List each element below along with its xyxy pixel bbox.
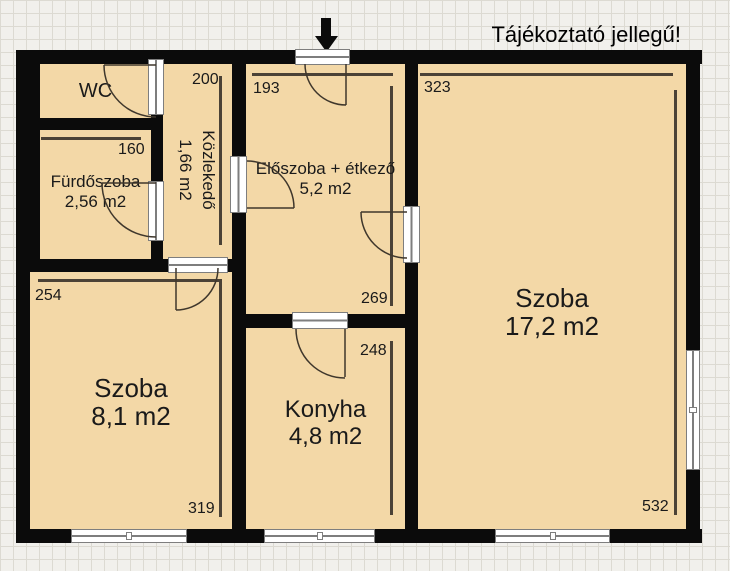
wall-outer-right [686,470,700,543]
door-opening-eloszoba-szoba-nagy [403,206,420,263]
dimension-line-szoba-nagy-width [420,73,673,76]
wall-outer-left [16,50,30,543]
wall-outer-right [686,50,700,350]
room-label-wc: WC [40,81,151,101]
wall-eloszoba-szoba-nagy [405,64,418,206]
wall-outer-bottom [375,529,495,543]
room-area: 5,2 m2 [246,179,405,199]
door-opening-entrance [295,49,350,65]
floorplan-canvas: Tájékoztató jellegű! 193 269 323 532 200… [0,0,730,571]
dimension-label-kozlekedo-height: 200 [192,71,219,88]
plan-disclaimer-title: Tájékoztató jellegű! [380,22,681,48]
room-name: Szoba [30,374,232,402]
door-opening-kozlekedo-eloszoba [230,156,247,213]
wall-eloszoba-konyha [348,314,405,328]
room-name: Szoba [418,284,686,312]
wall-wc-furdoszoba [40,118,151,130]
door-opening-eloszoba-konyha [292,312,348,329]
dimension-label-szoba-kis-width: 254 [35,287,62,304]
room-label-szoba-nagy: Szoba 17,2 m2 [418,284,686,340]
room-label-furdoszoba: Fürdőszoba 2,56 m2 [40,172,151,212]
dimension-line-furdoszoba-width [41,137,141,140]
wall-wc-kozlekedo [151,115,163,181]
wall-szoba-kis-konyha [232,272,246,543]
door-opening-wc [148,59,164,115]
room-label-eloszoba: Előszoba + étkező 5,2 m2 [246,159,405,199]
dimension-label-szoba-kis-height: 319 [188,500,215,517]
dimension-label-szoba-nagy-width: 323 [424,79,451,96]
wall-outer-bottom [16,529,71,543]
room-name: WC [40,81,151,101]
room-area: 1,66 m2 [174,115,197,225]
room-label-kozlekedo: Közlekedő 1,66 m2 [174,115,220,225]
wall-outer-bottom [187,529,264,543]
room-name: Konyha [246,396,405,423]
dimension-line-szoba-kis-width [38,279,222,282]
room-area: 4,8 m2 [246,423,405,450]
room-area: 8,1 m2 [30,402,232,430]
door-opening-kozlekedo-szoba-kis [168,257,228,273]
dimension-label-eloszoba-height: 269 [361,290,388,307]
dimension-label-eloszoba-width: 193 [253,80,280,97]
wall-furdoszoba-szoba-kis [16,259,168,272]
window-szoba-kis [71,529,187,543]
dimension-label-szoba-nagy-height: 532 [642,498,669,515]
room-label-konyha: Konyha 4,8 m2 [246,396,405,450]
room-area: 2,56 m2 [40,192,151,212]
wall-outer-left-pad [30,50,40,272]
room-name: Fürdőszoba [40,172,151,192]
wall-outer-top [16,50,702,64]
window-szoba-nagy-bottom [495,529,610,543]
door-opening-furdoszoba [148,181,164,241]
room-name: Közlekedő [197,115,220,225]
window-konyha [264,529,375,543]
dimension-label-konyha-height: 248 [360,342,387,359]
wall-konyha-szoba-nagy [405,263,418,529]
room-label-szoba-kis: Szoba 8,1 m2 [30,374,232,430]
dimension-label-furdoszoba-width: 160 [118,141,145,158]
wall-kozlekedo-eloszoba [232,64,246,156]
window-szoba-nagy-right [686,350,700,470]
wall-furdoszoba-kozlekedo [151,241,163,259]
wall-kozlekedo-eloszoba [232,213,246,272]
wall-eloszoba-konyha [246,314,292,328]
dimension-line-eloszoba-width [252,73,393,76]
room-name: Előszoba + étkező [246,159,405,179]
room-area: 17,2 m2 [418,312,686,340]
